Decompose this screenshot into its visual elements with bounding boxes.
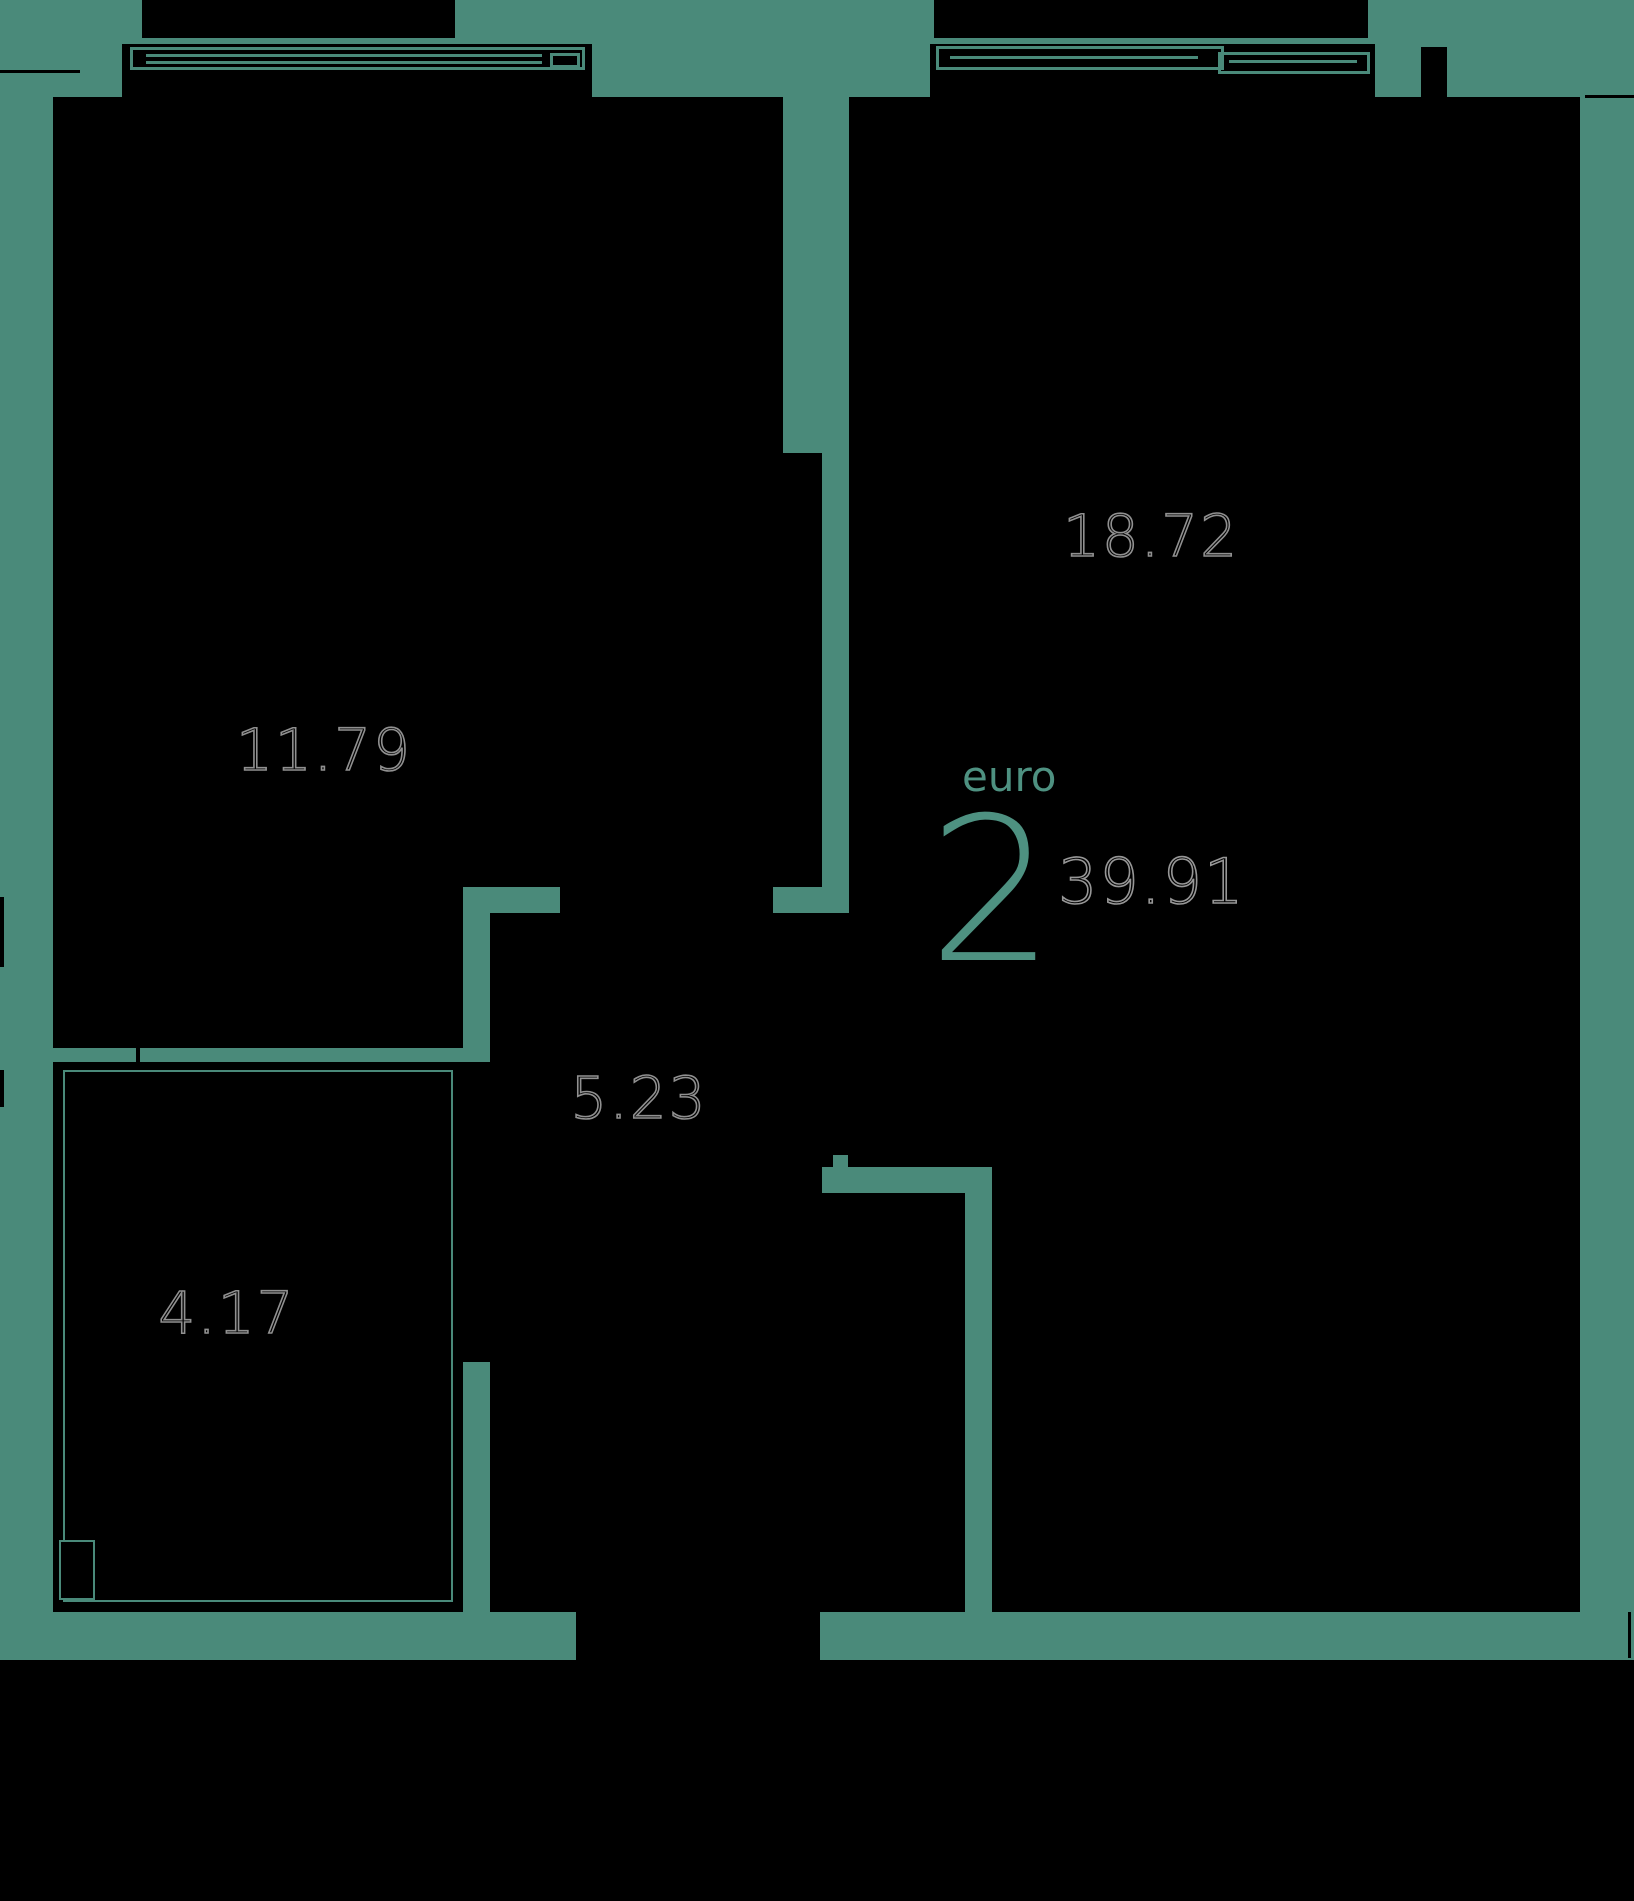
bathroom-door-mark [136, 1048, 140, 1062]
window-left-sash [550, 53, 580, 68]
room-1-nook [53, 887, 463, 1048]
bathroom-area-label: 4.17 [158, 1279, 295, 1347]
bathroom-fixture-icon [59, 1540, 95, 1600]
unit-total-area: 39.91 [1058, 845, 1246, 918]
window-right-pier [1421, 47, 1447, 102]
entrance-door-line [817, 1612, 820, 1660]
window-right-glass-line [950, 56, 1198, 59]
cut-line-bottom-right [1628, 1612, 1631, 1658]
hallway-floor-lower [490, 1193, 965, 1612]
cut-line-left-lower [0, 1070, 4, 1107]
room-1-area-label: 11.79 [236, 716, 412, 784]
window-left-frame [130, 47, 585, 70]
balcony-slab-left [142, 0, 455, 38]
unit-rooms-count: 2 [928, 792, 1055, 992]
window-right-sash-glass-line [1229, 60, 1357, 63]
hallway-area-label: 5.23 [570, 1064, 707, 1132]
room-1-door-opening [560, 887, 773, 913]
window-left-icon [122, 44, 592, 104]
floor-plan: 11.79 18.72 5.23 4.17 euro 2 39.91 [0, 0, 1634, 1901]
hall-wall-notch [833, 1155, 848, 1167]
room-2-floor-lower [992, 1167, 1580, 1612]
cut-line-left-upper [0, 897, 4, 967]
cut-line-top-right [1585, 95, 1634, 98]
balcony-slab-right [934, 0, 1368, 38]
room-2-area-label: 18.72 [1063, 502, 1239, 570]
window-left-glass-line-2 [146, 61, 542, 64]
room-1-floor-lower [53, 453, 822, 887]
building-mass-bottom [0, 1660, 1634, 1901]
window-left-glass-line-1 [146, 54, 542, 57]
entrance-opening [576, 1612, 817, 1660]
bathroom-door-opening [463, 1062, 490, 1362]
cut-line-top-left [0, 70, 80, 73]
window-right-icon [930, 44, 1375, 104]
window-right-sash [1218, 52, 1370, 74]
